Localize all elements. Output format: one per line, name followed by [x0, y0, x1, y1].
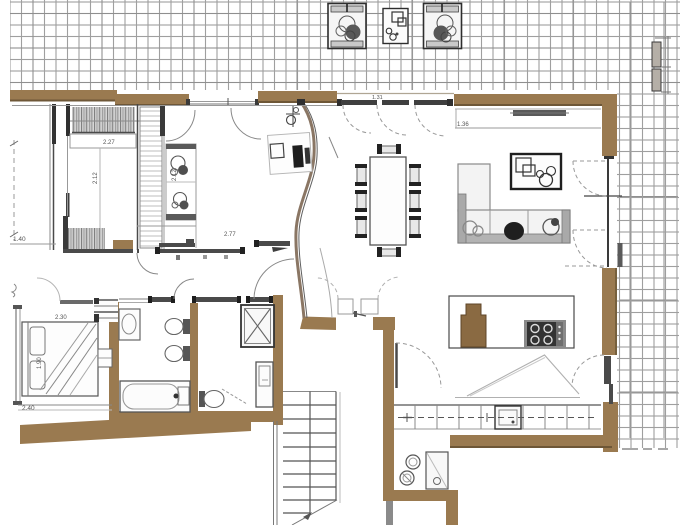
svg-text:2.40: 2.40 — [22, 405, 35, 412]
svg-text:2.30: 2.30 — [55, 315, 67, 321]
svg-text:1.90: 1.90 — [37, 357, 43, 369]
svg-text:2.27: 2.27 — [103, 140, 115, 146]
svg-text:2.77: 2.77 — [224, 232, 236, 238]
svg-text:1.40: 1.40 — [13, 236, 26, 243]
svg-text:1.36: 1.36 — [457, 122, 469, 128]
svg-text:1.31: 1.31 — [372, 95, 383, 101]
svg-text:2.12: 2.12 — [172, 169, 178, 181]
svg-text:2.12: 2.12 — [93, 172, 99, 184]
